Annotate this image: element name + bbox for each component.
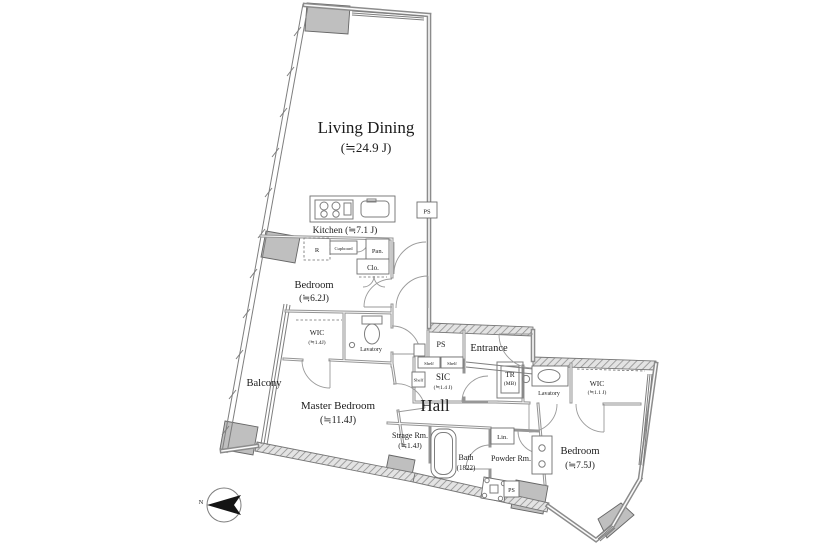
label-bedroom-center: Bedroom	[294, 280, 333, 291]
label-refrigerator: R	[315, 247, 320, 254]
door-living-leaf-2	[396, 276, 428, 308]
floor-plan-canvas: N Living Dining (≒24.9 J) Kitchen (≒7.1 …	[0, 0, 828, 551]
powder-vanity	[532, 436, 552, 474]
label-balcony: Balcony	[247, 378, 283, 389]
label-shelf-1: Shelf	[424, 361, 434, 366]
label-living-dining: Living Dining	[318, 118, 415, 137]
label-closet: Clo.	[367, 264, 379, 272]
vanity-counter	[532, 366, 568, 386]
label-trunk-room: TR	[505, 370, 515, 379]
label-lavatory-toilet: Lavatory	[360, 347, 382, 353]
label-cupboard: Cupboard	[334, 246, 353, 251]
label-powder-room: Powder Rm.	[491, 454, 531, 463]
label-wic-master: WIC	[310, 328, 325, 337]
hatched-walls	[255, 323, 656, 512]
label-ps-living: PS	[423, 209, 431, 216]
window-balcony	[261, 304, 290, 445]
label-storage-room: Strage Rm.	[392, 431, 428, 440]
label-sic: SIC	[436, 372, 450, 382]
compass-arrow-icon	[207, 495, 241, 515]
toilet-tank	[362, 316, 382, 324]
door-bedroom-east-leaf-2	[576, 404, 604, 432]
label-bedroom-east-size: (≒7.5J)	[565, 460, 595, 471]
label-shelf-3: Shelf	[414, 378, 424, 383]
label-pantry: Pan.	[372, 248, 384, 255]
label-bath-size: (1822)	[457, 464, 476, 472]
label-bedroom-east: Bedroom	[560, 446, 599, 457]
door-living-leaf-1	[394, 242, 426, 274]
label-wic-east: WIC	[590, 379, 605, 388]
door-bedroom-east-leaf-1	[529, 404, 557, 432]
label-wic-master-size: (≒1.4J)	[308, 339, 325, 346]
door-sic	[462, 376, 488, 402]
label-entrance: Entrance	[470, 343, 508, 354]
label-master-bedroom-size: (≒11.4J)	[320, 415, 356, 426]
label-ps-entrance: PS	[437, 340, 446, 349]
label-lavatory-basin: Lavatory	[538, 391, 560, 397]
door-wic-master	[302, 360, 330, 388]
toilet-icon	[365, 324, 380, 344]
label-kitchen: Kitchen (≒7.1 J)	[313, 225, 378, 236]
label-shelf-2: Shelf	[447, 361, 457, 366]
label-master-bedroom: Master Bedroom	[301, 400, 376, 412]
compass-north-label: N	[199, 499, 204, 506]
label-storage-room-size: (≒1.4J)	[398, 441, 422, 450]
floor-plan-page: N Living Dining (≒24.9 J) Kitchen (≒7.1 …	[0, 0, 828, 551]
label-sic-size: (≒1.4 J)	[434, 384, 453, 391]
label-bath: Bath	[458, 453, 473, 462]
compass: N	[199, 488, 241, 522]
label-ps-powder: PS	[508, 488, 515, 494]
meter-box	[414, 344, 425, 356]
label-hall: Hall	[420, 396, 450, 415]
label-wic-east-size: (≒1.1 J)	[588, 389, 607, 396]
label-bedroom-center-size: (≒6.2J)	[299, 293, 329, 304]
label-trunk-room-size: (MB)	[504, 380, 516, 387]
label-living-dining-size: (≒24.9 J)	[341, 140, 392, 155]
door-bedroom-center	[364, 279, 392, 307]
label-linen: Lin.	[497, 434, 508, 441]
